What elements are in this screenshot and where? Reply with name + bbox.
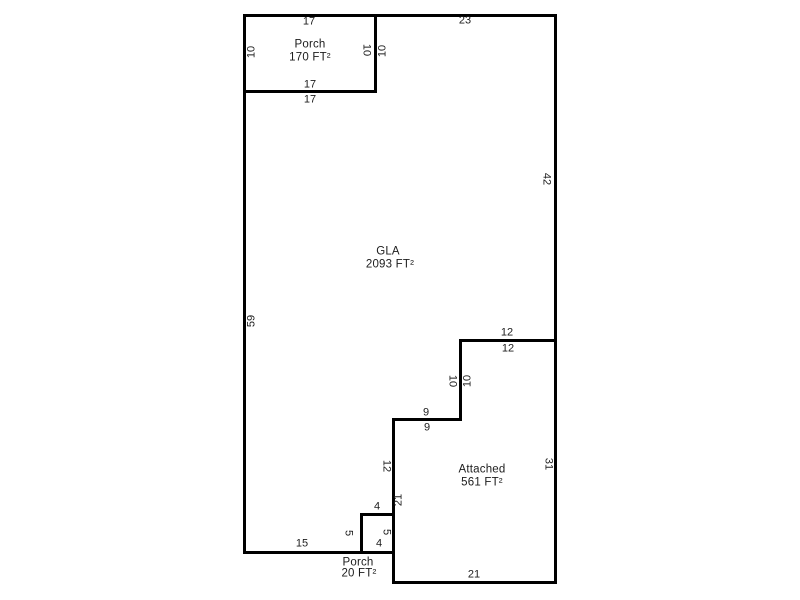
wall-left [243,14,246,554]
dim-porch2-left-height-gla-side: 5 [343,530,354,536]
dim-porch2-bottom-width: 4 [376,539,382,550]
dim-gla-upper-left-height: 10 [378,45,389,57]
area-label-porch-bottom-size: 20 FT² [341,568,376,580]
dim-attached-top-width-gla-side: 12 [501,328,513,339]
wall-right [554,14,557,584]
dim-attached-step-width: 9 [424,423,430,434]
dim-gla-bottom-width: 15 [296,539,308,550]
dim-porch2-top-width: 4 [374,502,380,513]
dim-attached-step-height-gla-side: 10 [447,375,458,387]
dim-attached-step-width-gla-side: 9 [423,408,429,419]
dim-gla-lower-right-height: 12 [381,460,392,472]
dim-attached-top-width: 12 [502,344,514,355]
wall-attached-bottom [392,581,557,584]
area-label-gla-size: 2093 FT² [366,259,414,271]
dim-porch2-right-height: 5 [381,529,392,535]
area-label-porch-top-size: 170 FT² [289,52,331,64]
dim-attached-bottom-width: 21 [468,570,480,581]
dim-porch-top-width: 17 [303,17,315,28]
area-label-attached-name: Attached [459,464,506,476]
dim-porch-bottom-width: 17 [304,80,316,91]
dim-porch-right-height: 10 [361,44,372,56]
dim-gla-left-height: 59 [247,315,258,327]
dim-gla-top-width: 23 [459,16,471,27]
dim-porch-left-height: 10 [247,46,258,58]
floor-plan-sketch: 17 23 10 10 10 17 17 42 59 12 12 10 10 9… [0,0,800,600]
wall-top [243,14,557,17]
area-label-gla-name: GLA [376,246,400,258]
area-label-attached-size: 561 FT² [461,477,503,489]
wall-porch2-left [360,513,363,554]
dim-attached-step-height: 10 [463,375,474,387]
dim-gla-upper-left-width: 17 [304,95,316,106]
wall-porch2-top [360,513,395,516]
wall-gla-bottom [243,551,395,554]
dim-attached-left-height: 21 [394,494,405,506]
area-label-porch-top-name: Porch [294,39,325,51]
dim-attached-right-height: 31 [543,458,554,470]
dim-gla-right-height: 42 [541,173,552,185]
